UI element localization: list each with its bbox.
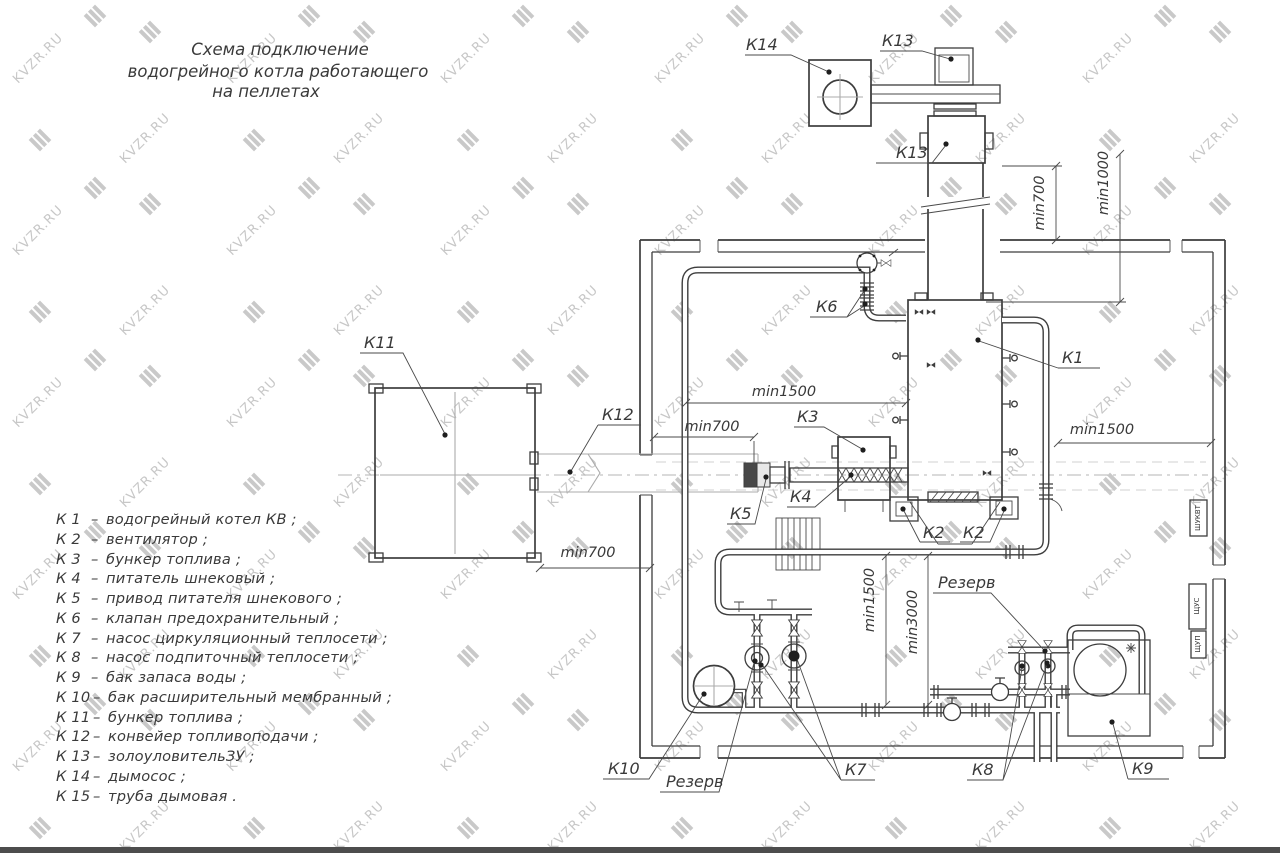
legend-code: К 2 <box>56 531 81 548</box>
panel-label-3: ЩУП <box>1194 635 1202 652</box>
legend-dash: – <box>93 788 101 805</box>
callout-reserve-right: Резерв <box>938 573 995 592</box>
legend-code: К 15 <box>56 788 90 805</box>
callout-reserve-left: Резерв <box>666 772 723 791</box>
legend-name: конвейер топливоподачи ; <box>108 728 319 745</box>
callout-k14: К14 <box>746 35 778 54</box>
callout-k12: К12 <box>602 405 634 424</box>
legend-dash: – <box>91 570 99 587</box>
legend-code: К 11 <box>56 709 90 726</box>
legend-name: бункер топлива ; <box>108 709 243 726</box>
callout-k10: К10 <box>608 759 640 778</box>
dim-min700-bunker: min700 <box>560 545 615 561</box>
dim-min1500-right: min1500 <box>1070 422 1134 438</box>
boiler-piping-diagram: KVZR.RU KVZR.RU Схема <box>0 0 1280 853</box>
legend-dash: – <box>91 610 99 627</box>
panel-label-1: ШУКВТ <box>1194 504 1202 531</box>
bottom-bar <box>0 847 1280 853</box>
callout-k13-mid: К13 <box>896 143 928 162</box>
legend-dash: – <box>91 669 99 686</box>
callout-k4: К4 <box>790 487 812 506</box>
legend-code: К 12 <box>56 728 90 745</box>
legend-name: золоуловительЗУ ; <box>108 748 255 765</box>
callout-k9: К9 <box>1132 759 1154 778</box>
title-line-3: на пеллетах <box>212 82 320 101</box>
legend-name: клапан предохранительный ; <box>106 610 339 627</box>
legend-dash: – <box>91 649 99 666</box>
legend-code: К 13 <box>56 748 90 765</box>
dim-min1500-ceiling: min1500 <box>752 384 816 400</box>
legend-name: бункер топлива ; <box>106 551 241 568</box>
legend-code: К 3 <box>56 551 81 568</box>
legend-dash: – <box>93 689 101 706</box>
legend-name: дымосос ; <box>107 768 186 785</box>
legend-code: К 4 <box>56 570 81 587</box>
legend-code: К 6 <box>56 610 81 627</box>
legend-name: насос подпиточный теплосети ; <box>106 649 359 666</box>
dim-min1000: min1000 <box>1096 151 1112 215</box>
dim-min700-feeder: min700 <box>684 419 739 435</box>
legend-name: бак расширительный мембранный ; <box>108 689 392 706</box>
legend-dash: – <box>91 551 99 568</box>
title-line-2: водогрейного котла работающего <box>128 62 429 81</box>
panel-label-2: ЩУС <box>1193 597 1201 614</box>
dim-min1500-vertical: min1500 <box>862 568 878 632</box>
callout-k11: К11 <box>364 333 396 352</box>
legend-dash: – <box>93 728 101 745</box>
callout-k3: К3 <box>797 407 819 426</box>
legend-name: привод питателя шнекового ; <box>106 590 342 607</box>
legend-dash: – <box>93 709 101 726</box>
callout-k6: К6 <box>816 297 838 316</box>
callout-k5: К5 <box>730 504 752 523</box>
legend-name: труба дымовая . <box>108 788 237 805</box>
legend-code: К 5 <box>56 590 81 607</box>
legend-code: К 14 <box>56 768 90 785</box>
legend-code: К 7 <box>56 630 81 647</box>
legend-code: К 9 <box>56 669 81 686</box>
legend-code: К 1 <box>56 511 81 528</box>
callout-k2-right: К2 <box>963 523 985 542</box>
legend-code: К 8 <box>56 649 81 666</box>
legend-dash: – <box>91 590 99 607</box>
legend-code: К 10 <box>56 689 90 706</box>
legend-dash: – <box>91 531 99 548</box>
legend-dash: – <box>91 511 99 528</box>
callout-k1: К1 <box>1062 348 1084 367</box>
legend-name: вентилятор ; <box>106 531 208 548</box>
dim-min3000: min3000 <box>905 590 921 654</box>
vent-icon <box>1126 643 1136 653</box>
legend-name: питатель шнековый ; <box>106 570 275 587</box>
legend-dash: – <box>93 768 101 785</box>
callout-k7: К7 <box>845 760 867 779</box>
legend-dash: – <box>91 630 99 647</box>
legend-name: бак запаса воды ; <box>106 669 246 686</box>
legend-dash: – <box>93 748 101 765</box>
callout-k13-top: К13 <box>882 31 914 50</box>
title-line-1: Схема подключение <box>191 40 369 59</box>
legend-name: водогрейный котел КВ ; <box>106 511 297 528</box>
callout-k8: К8 <box>972 760 994 779</box>
callout-k2-left: К2 <box>923 523 945 542</box>
legend-name: насос циркуляционный теплосети ; <box>106 630 388 647</box>
dim-min700-top: min700 <box>1032 175 1048 230</box>
